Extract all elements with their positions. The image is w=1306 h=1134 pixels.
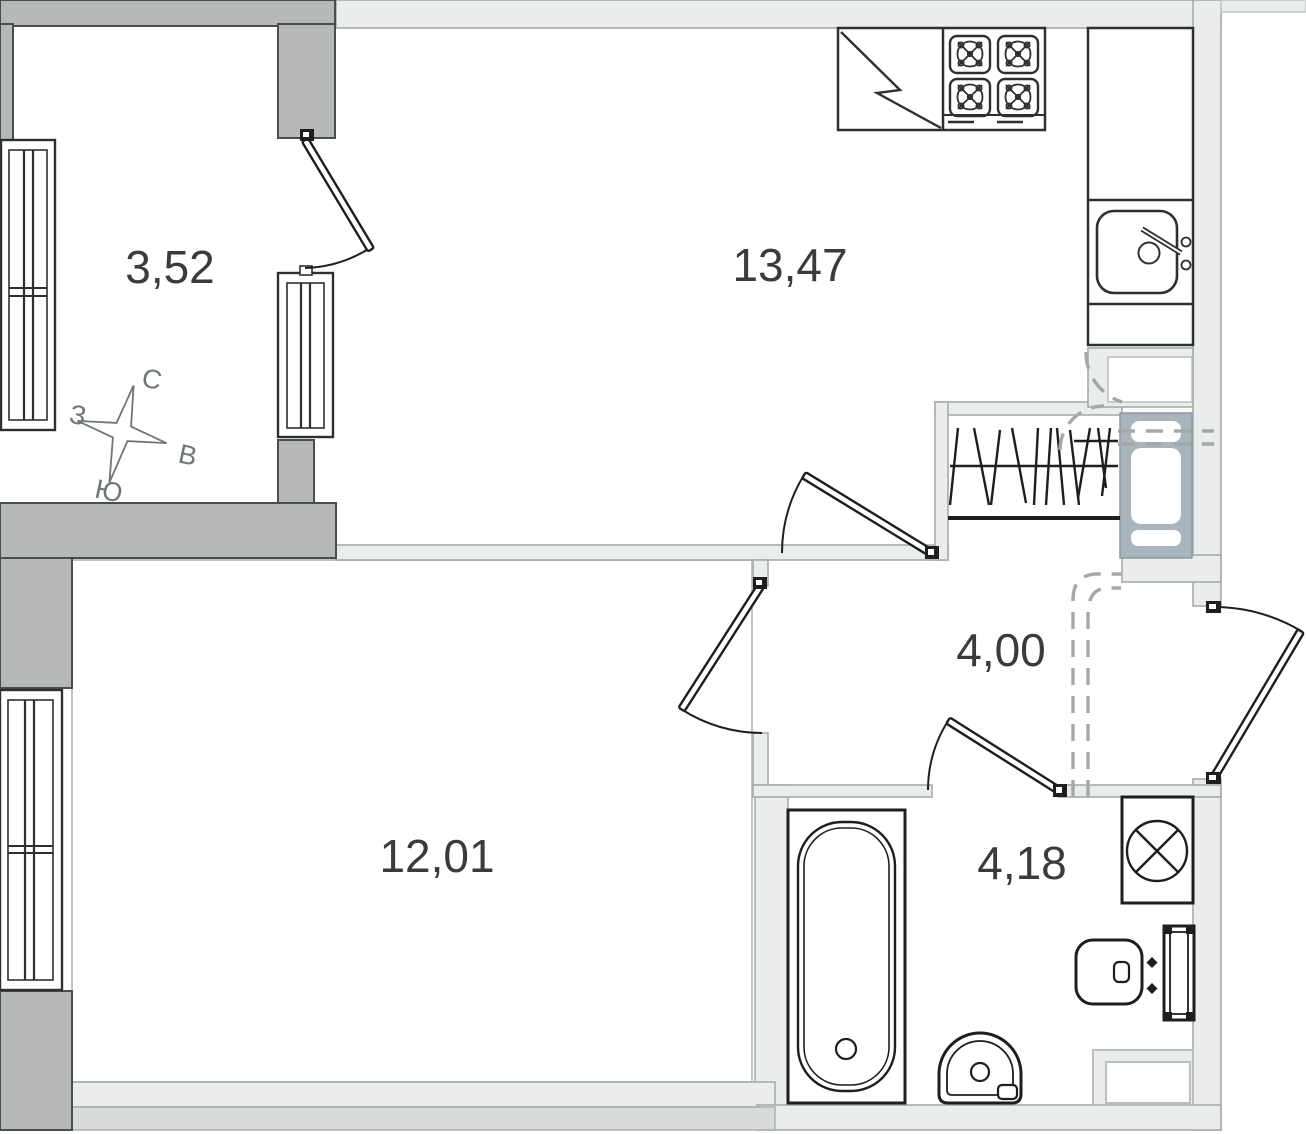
loggia-area-label: 3,52	[125, 241, 215, 293]
living-room-area-label: 12,01	[379, 830, 494, 882]
bathtub-icon	[788, 810, 905, 1103]
bathroom-duct-box	[1093, 1050, 1193, 1105]
compass-north-label: С	[139, 362, 164, 395]
wall-loggia-top	[0, 0, 335, 26]
wall-living-bathroom	[755, 785, 788, 1107]
kitchen-sink-icon	[1097, 211, 1191, 293]
loggia-door	[300, 129, 374, 268]
wall-loggia-bottom	[0, 503, 336, 558]
countertop-right	[1088, 28, 1193, 345]
wall-wardrobe-left	[935, 402, 948, 560]
wall-top-continuation	[1221, 0, 1306, 12]
wall-bottom-living-inner	[72, 1082, 775, 1107]
wall-right-upper	[1193, 0, 1221, 606]
living-room-door	[679, 577, 767, 733]
wall-bathroom-top-left	[753, 785, 932, 797]
floor-plan-drawing: С З В Ю 3,52 13,47 4,00 12,01 4,18	[0, 0, 1306, 1134]
wall-kitchen-top	[336, 0, 1221, 28]
floor-plan: С З В Ю 3,52 13,47 4,00 12,01 4,18	[0, 0, 1306, 1134]
wall-right-lower	[1193, 779, 1221, 1130]
hallway-area-label: 4,00	[956, 624, 1046, 676]
kitchen-counter	[838, 28, 1193, 345]
wall-loggia-right-upper	[278, 24, 335, 138]
wall-bottom-bathroom	[757, 1105, 1221, 1130]
living-room-floor-outline	[72, 560, 752, 1082]
toilet-icon	[1076, 926, 1194, 1020]
washbasin-icon	[939, 1033, 1021, 1103]
wall-loggia-left-upper	[0, 24, 13, 142]
wall-living-left-upper	[0, 558, 72, 688]
wall-kitchen-bottom	[336, 545, 948, 560]
wall-living-left-pier	[0, 991, 72, 1130]
wall-bottom-outer-band	[72, 1107, 775, 1130]
compass-east-label: В	[176, 439, 200, 472]
bathroom-door	[928, 718, 1067, 797]
window-icon	[1, 140, 55, 430]
compass-rose-icon: С З В Ю	[65, 362, 200, 508]
bathroom-area-label: 4,18	[977, 837, 1067, 889]
wardrobe-hangers-icon	[948, 428, 1120, 518]
wall-below-shaft	[1122, 555, 1221, 582]
kitchen-area-label: 13,47	[732, 239, 847, 291]
ventilation-shaft-icon	[1120, 413, 1192, 558]
shaft-upper-opening	[1108, 357, 1192, 402]
wall-bathroom-top-right	[1058, 785, 1221, 797]
washing-machine-icon	[1122, 797, 1193, 903]
window-icon	[278, 266, 333, 437]
window-icon	[0, 690, 62, 990]
entrance-door	[1206, 601, 1304, 784]
wall-hall-living-lower	[753, 733, 768, 788]
wall-loggia-right-lower	[278, 440, 314, 505]
compass-west-label: З	[67, 399, 89, 432]
